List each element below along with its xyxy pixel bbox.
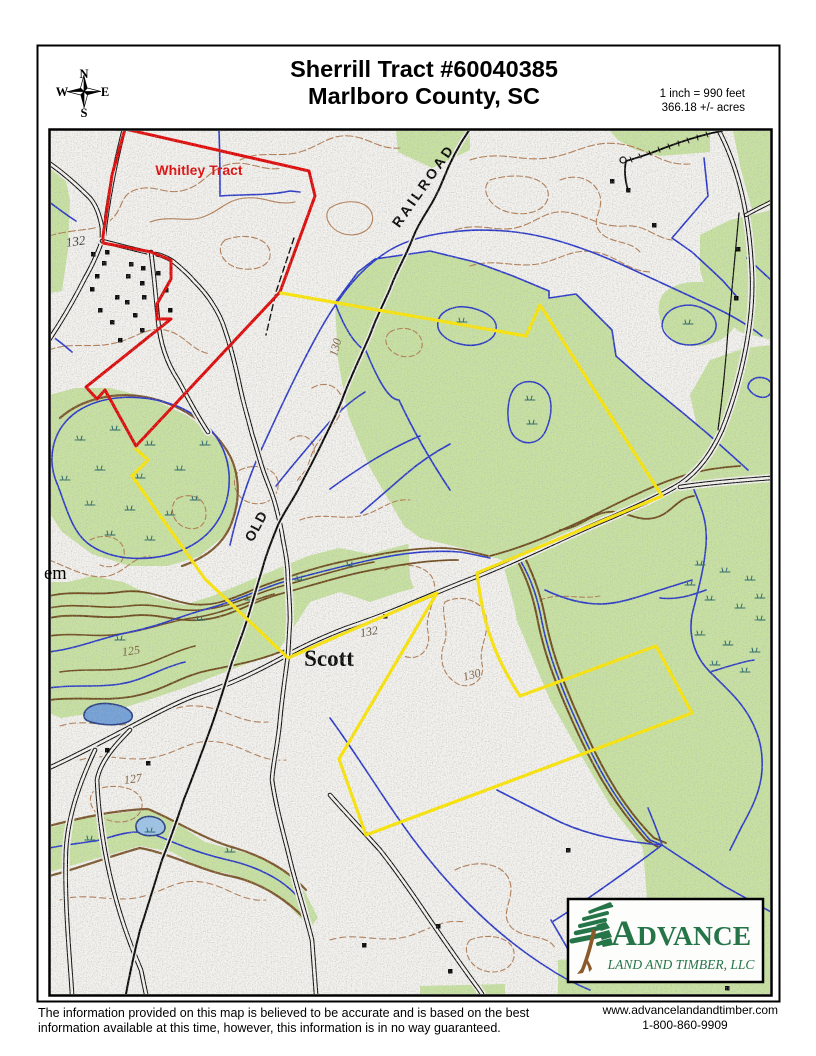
svg-text:366.18 +/- acres: 366.18 +/- acres [662,102,746,114]
svg-text:Marlboro County, SC: Marlboro County, SC [308,83,540,109]
svg-text:information available at this: information available at this time, howe… [38,1021,501,1035]
svg-text:em: em [44,564,67,584]
svg-text:W: W [56,85,69,99]
svg-text:The information provided on th: The information provided on this map is … [38,1006,530,1020]
svg-text:N: N [79,67,88,81]
svg-text:www.advancelandandtimber.com: www.advancelandandtimber.com [602,1003,778,1017]
svg-text:1 inch = 990 feet: 1 inch = 990 feet [660,88,746,100]
svg-text:LAND AND TIMBER, LLC: LAND AND TIMBER, LLC [607,957,756,972]
svg-text:Sherrill Tract #60040385: Sherrill Tract #60040385 [290,56,558,82]
svg-text:1-800-860-9909: 1-800-860-9909 [642,1018,728,1032]
svg-text:S: S [81,106,88,120]
svg-text:E: E [101,85,109,99]
